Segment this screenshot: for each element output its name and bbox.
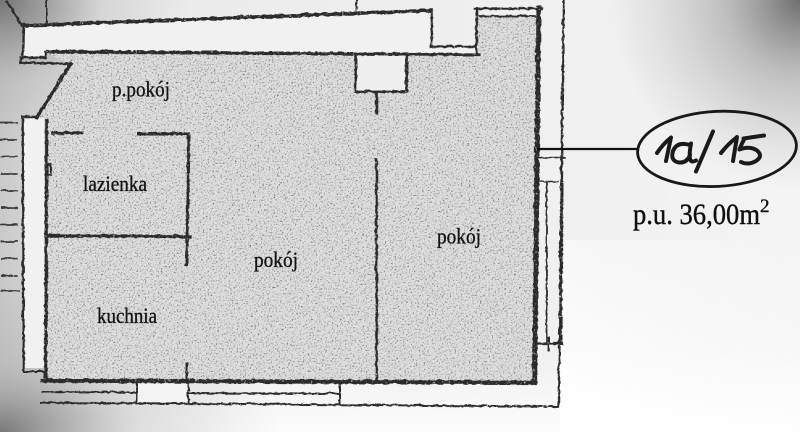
svg-text:pokój: pokój bbox=[254, 247, 298, 272]
svg-text:p.pokój: p.pokój bbox=[112, 77, 170, 102]
svg-text:p.u. 36,00m: p.u. 36,00m bbox=[633, 198, 760, 231]
svg-text:lazienka: lazienka bbox=[83, 171, 147, 196]
svg-text:pokój: pokój bbox=[437, 224, 481, 249]
svg-text:kuchnia: kuchnia bbox=[97, 303, 157, 328]
svg-text:2: 2 bbox=[760, 196, 770, 217]
